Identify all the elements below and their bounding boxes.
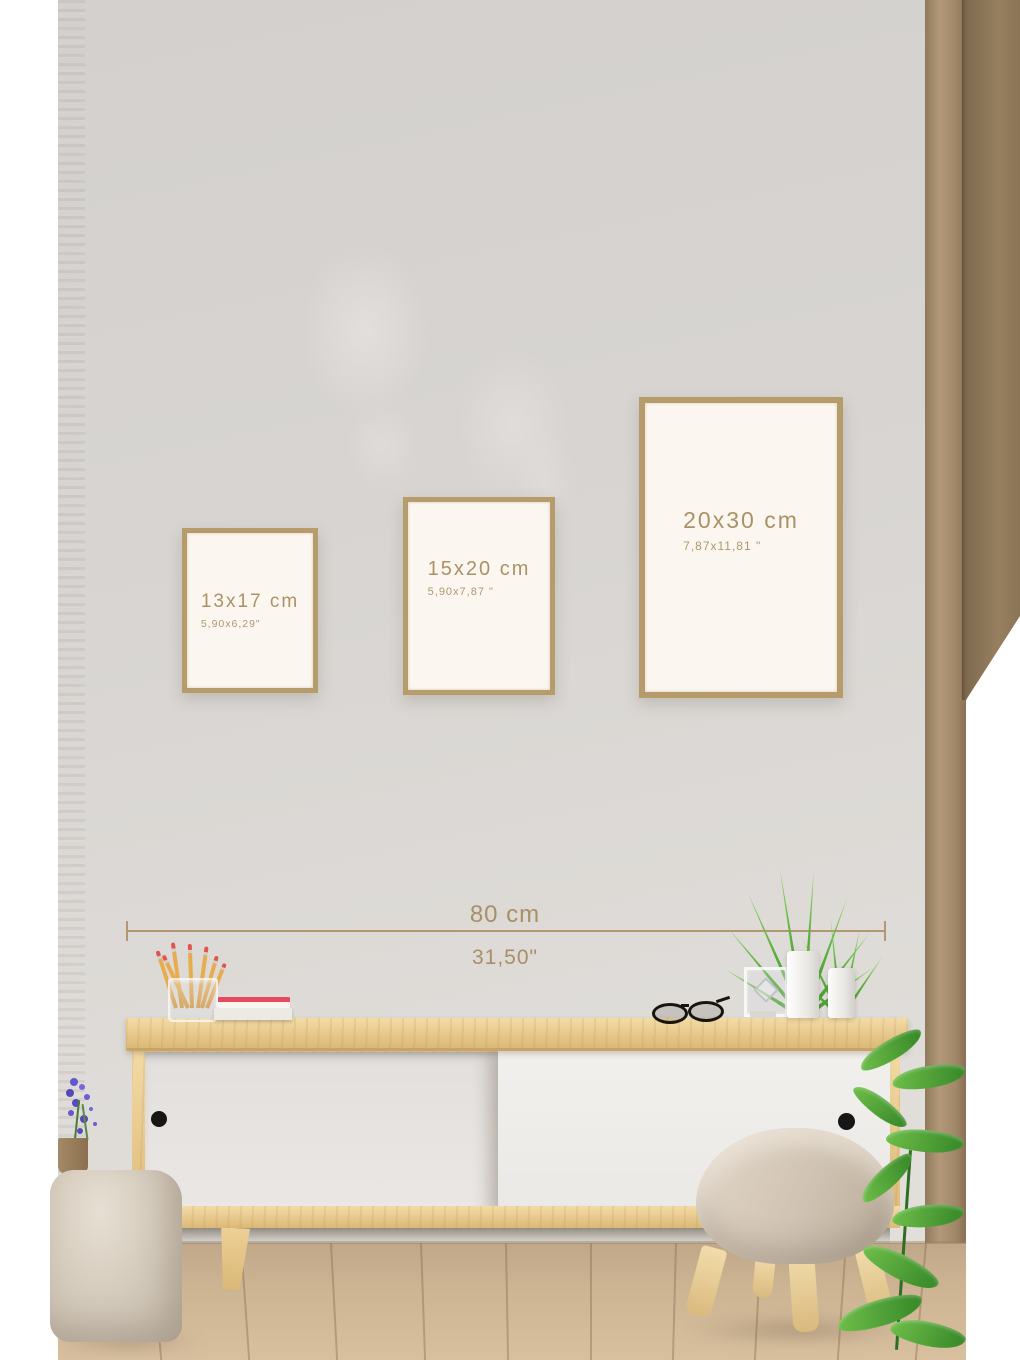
lavender-pot [58,1138,88,1174]
measure-tick-right [884,921,886,941]
lavender-flowers [70,1078,78,1086]
wood-pillar-seam [962,0,967,700]
floor-plank-seam [505,1243,509,1360]
measure-label-cm: 80 cm [405,901,605,929]
measure-line [127,930,885,932]
frame-size-inch-label: 5,90x6,29" [201,618,299,630]
frame-15x20: 15x20 cm 5,90x7,87 " [403,497,555,695]
frame-size-label: 13x17 cm [201,591,299,613]
eyeglasses-lens-right [688,1001,724,1022]
wood-pillar-right-side [966,0,1020,700]
frame-size-label: 15x20 cm [428,558,531,581]
frame-13x17: 13x17 cm 5,90x6,29" [182,528,318,693]
measure-tick-left [126,921,128,941]
frame-20x30-label: 20x30 cm 7,87x11,81 " [683,507,799,553]
glass-pencil-cup [168,978,218,1022]
floor-plank-seam [590,1243,592,1360]
wall-smudge [345,400,420,490]
acrylic-ornament-base [750,1011,776,1018]
measure-label-inch: 31,50" [405,946,605,970]
photo-white-margin-left [0,0,58,1360]
door-finger-hole-left [151,1111,167,1127]
frame-size-inch-label: 7,87x11,81 " [683,539,799,553]
frame-20x30: 20x30 cm 7,87x11,81 " [639,397,843,698]
wood-pillar-right-front [925,0,966,1247]
frame-13x17-label: 13x17 cm 5,90x6,29" [201,591,299,630]
sliding-door-left [145,1052,498,1208]
floor-plank-seam [672,1243,677,1360]
frame-15x20-label: 15x20 cm 5,90x7,87 " [428,558,531,598]
frame-size-label: 20x30 cm [683,507,799,534]
pouf [50,1170,182,1342]
eyeglasses-bridge [681,1004,689,1012]
vase-tall [787,951,819,1018]
floor-plank-seam [330,1243,339,1360]
book-top [218,997,290,1008]
door-finger-hole-right [838,1113,855,1130]
photo-white-margin-right [966,612,1020,1360]
frame-size-inch-label: 5,90x7,87 " [428,586,531,598]
room-mockup-photo: 13x17 cm 5,90x6,29" 15x20 cm 5,90x7,87 "… [0,0,1020,1360]
vase-short [828,968,855,1018]
wall-smudge [300,245,430,415]
floor-plank-seam [420,1243,426,1360]
book-bottom [214,1008,292,1020]
sideboard-top [126,1018,908,1051]
